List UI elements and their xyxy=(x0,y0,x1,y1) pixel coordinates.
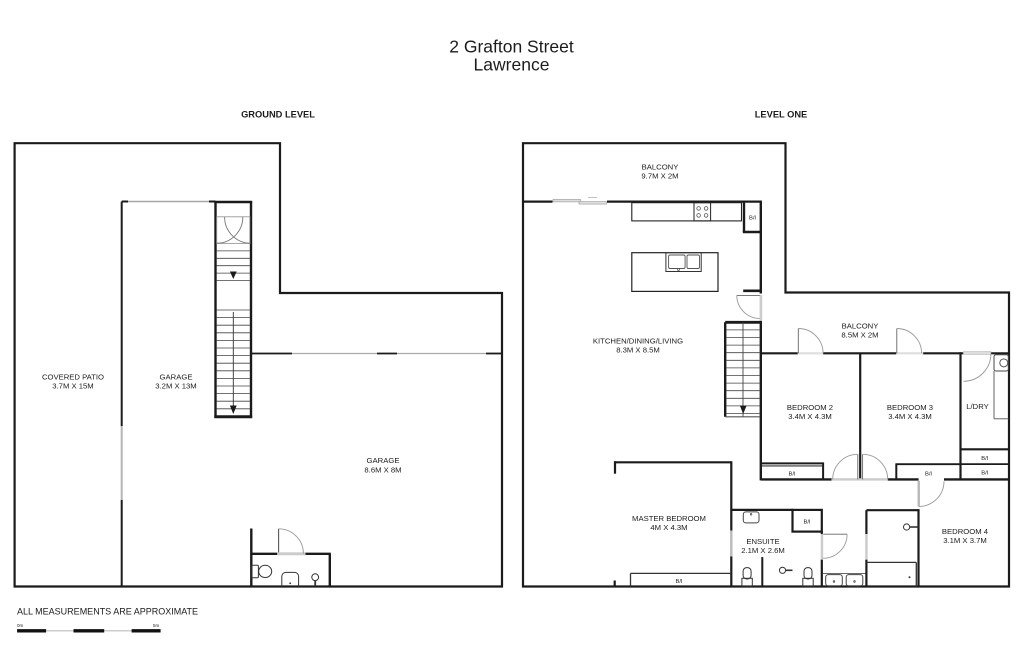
svg-text:BEDROOM 3: BEDROOM 3 xyxy=(887,403,933,412)
svg-text:8.3M X 8.5M: 8.3M X 8.5M xyxy=(616,346,660,355)
svg-text:BEDROOM 2: BEDROOM 2 xyxy=(787,403,833,412)
svg-text:ALL MEASUREMENTS ARE APPROXIMA: ALL MEASUREMENTS ARE APPROXIMATE xyxy=(17,607,198,617)
svg-text:2 Grafton Street: 2 Grafton Street xyxy=(449,37,574,57)
svg-text:3.1M X 3.7M: 3.1M X 3.7M xyxy=(943,536,987,545)
svg-text:2.1M X 2.6M: 2.1M X 2.6M xyxy=(741,546,785,555)
svg-text:B/I: B/I xyxy=(803,520,810,526)
svg-text:ENSUITE: ENSUITE xyxy=(746,537,779,546)
svg-text:5m: 5m xyxy=(153,623,160,628)
svg-text:GROUND LEVEL: GROUND LEVEL xyxy=(241,110,315,120)
svg-text:BALCONY: BALCONY xyxy=(642,163,679,172)
svg-text:B/I: B/I xyxy=(675,579,682,585)
svg-text:B/I: B/I xyxy=(925,472,932,478)
svg-text:8.5M X 2M: 8.5M X 2M xyxy=(841,331,878,340)
svg-text:LEVEL ONE: LEVEL ONE xyxy=(755,110,808,120)
svg-text:GARAGE: GARAGE xyxy=(367,456,400,465)
svg-text:BALCONY: BALCONY xyxy=(842,322,879,331)
svg-text:L/DRY: L/DRY xyxy=(966,402,989,411)
svg-text:9.7M X 2M: 9.7M X 2M xyxy=(641,172,678,181)
svg-text:GARAGE: GARAGE xyxy=(160,373,193,382)
svg-text:3.2M X 13M: 3.2M X 13M xyxy=(155,382,196,391)
svg-text:BEDROOM 4: BEDROOM 4 xyxy=(942,527,989,536)
svg-text:COVERED PATIO: COVERED PATIO xyxy=(42,373,104,382)
svg-text:Lawrence: Lawrence xyxy=(474,55,550,75)
svg-text:MASTER BEDROOM: MASTER BEDROOM xyxy=(632,514,706,523)
svg-text:KITCHEN/DINING/LIVING: KITCHEN/DINING/LIVING xyxy=(593,337,683,346)
svg-text:3.7M X 15M: 3.7M X 15M xyxy=(52,382,93,391)
svg-text:0m: 0m xyxy=(17,623,24,628)
svg-text:B/I: B/I xyxy=(981,456,988,462)
svg-text:8.6M X 8M: 8.6M X 8M xyxy=(364,466,401,475)
svg-text:B/I: B/I xyxy=(981,471,988,477)
svg-text:3.4M X 4.3M: 3.4M X 4.3M xyxy=(788,412,832,421)
svg-text:3.4M X 4.3M: 3.4M X 4.3M xyxy=(888,412,932,421)
svg-text:B/I: B/I xyxy=(749,216,756,222)
svg-text:4M X 4.3M: 4M X 4.3M xyxy=(650,523,687,532)
svg-text:B/I: B/I xyxy=(788,472,795,478)
